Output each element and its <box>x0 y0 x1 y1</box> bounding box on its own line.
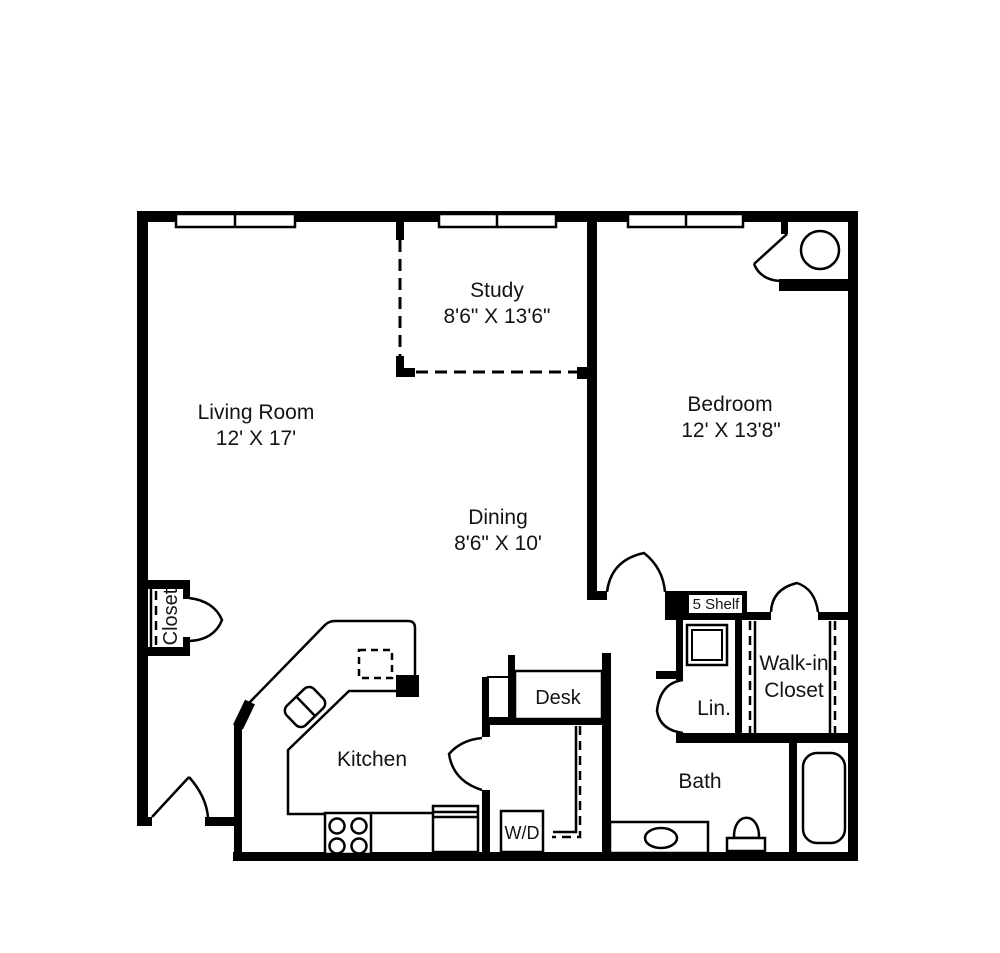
study-dims: 8'6" X 13'6" <box>444 305 551 328</box>
kitchen-overhead-cabinet-dashed <box>359 650 392 678</box>
study-label: Study <box>470 279 524 302</box>
bedroom-label: Bedroom <box>687 393 772 416</box>
water-heater-circle <box>801 231 839 269</box>
bathtub <box>803 753 845 843</box>
shelf-unit-inner <box>692 630 722 660</box>
shelf-label: 5 Shelf <box>693 596 741 613</box>
wall-closet-right-upper <box>183 580 190 599</box>
wall-entry-stub-left <box>137 817 152 826</box>
linen-closet-label: Lin. <box>697 697 731 720</box>
bath-label: Bath <box>678 770 721 793</box>
washer-dryer-label: W/D <box>505 823 540 843</box>
closet-door-swing <box>189 598 222 641</box>
wall-walkin-top-right <box>818 612 848 620</box>
walk-in-closet-door-swing <box>771 583 818 612</box>
bedroom-dims: 12' X 13'8" <box>681 419 781 442</box>
bath-fixtures <box>610 753 845 853</box>
wall-study-corner-h <box>396 368 415 377</box>
wall-left-exterior <box>137 211 148 825</box>
mechanical-closet-door-swing <box>754 234 787 281</box>
laundry-door-swing <box>449 738 482 790</box>
toilet-bowl <box>734 818 759 838</box>
dishwasher <box>433 806 478 852</box>
wall-kitchen-diagonal <box>238 702 250 727</box>
wall-niche-bottom <box>779 279 858 291</box>
wall-closet-top <box>137 580 190 589</box>
wall-laundry-lower <box>482 790 490 853</box>
wall-tub-partition <box>789 743 797 853</box>
toilet-tank <box>727 838 765 851</box>
wall-bedroom-divider <box>587 222 597 592</box>
cooktop <box>325 813 371 854</box>
bedroom-door-swing <box>607 553 665 592</box>
floor-plan: Living Room 12' X 17' Study 8'6" X 13'6"… <box>0 0 1000 948</box>
closet-label: Closet <box>160 588 182 645</box>
wall-closet-right-lower <box>183 637 190 656</box>
wall-niche-stub <box>781 222 788 234</box>
wall-right-exterior <box>848 211 858 861</box>
wall-bath-top <box>676 733 858 743</box>
labels: Living Room 12' X 17' Study 8'6" X 13'6"… <box>160 279 829 843</box>
wall-linen-stub <box>656 671 683 679</box>
shelf-unit <box>687 625 727 665</box>
windows <box>176 214 743 227</box>
kitchen-fixtures <box>249 621 478 854</box>
wall-linen-left <box>676 612 683 680</box>
walk-in-closet-label-line1: Walk-in <box>759 652 828 675</box>
wall-study-stub-top <box>396 222 404 240</box>
counter-end-post <box>396 675 419 697</box>
laundry-shelf-line <box>553 726 576 832</box>
entry-door-swing <box>152 777 208 817</box>
wall-bedroom-door-stub <box>587 591 607 600</box>
kitchen-label: Kitchen <box>337 748 407 771</box>
wall-kitchen-left <box>234 724 242 861</box>
linen-door-swing <box>657 680 683 733</box>
kitchen-sink <box>282 684 328 730</box>
toilet <box>727 818 765 851</box>
floor-plan-canvas: Living Room 12' X 17' Study 8'6" X 13'6"… <box>0 0 1000 948</box>
living-room-dims: 12' X 17' <box>216 427 296 450</box>
dining-label: Dining <box>468 506 528 529</box>
wall-linen-right <box>735 612 742 743</box>
wall-closet-bottom <box>137 647 190 656</box>
walk-in-closet-label-line2: Closet <box>764 679 824 702</box>
desk-side-cabinet <box>488 677 509 718</box>
living-room-label: Living Room <box>198 401 315 424</box>
dining-dims: 8'6" X 10' <box>454 532 542 555</box>
desk-label: Desk <box>535 687 582 709</box>
